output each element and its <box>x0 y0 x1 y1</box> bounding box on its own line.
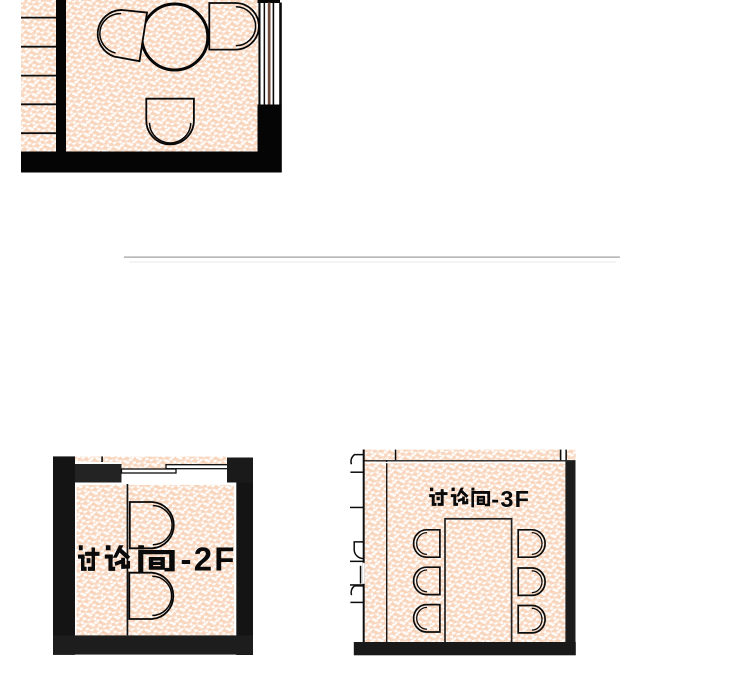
svg-text:-2F: -2F <box>181 540 237 577</box>
svg-text:-3F: -3F <box>491 486 530 512</box>
